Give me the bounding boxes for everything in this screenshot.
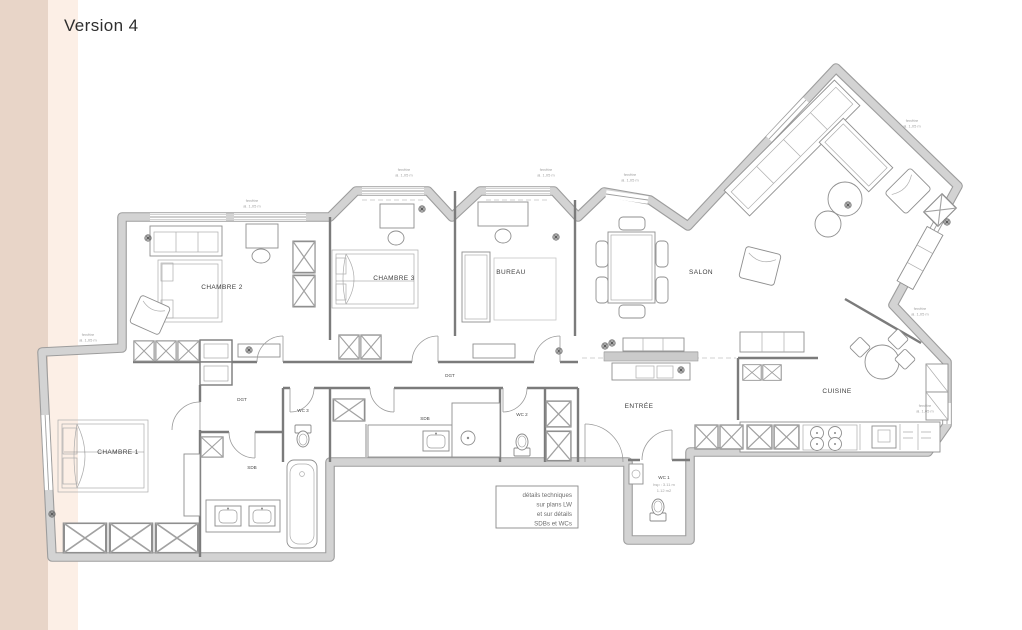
svg-text:fenêtre: fenêtre: [246, 198, 259, 203]
technical-shaft: [200, 340, 232, 385]
chambre1-furniture: [49, 420, 200, 553]
room-label-dgt-main: DGT: [445, 373, 455, 378]
svg-text:al. 1,05 m: al. 1,05 m: [903, 124, 921, 129]
room-label-sdb-mid: SDB: [420, 416, 429, 421]
room-label-chambre3: CHAMBRE 3: [373, 275, 415, 282]
svg-text:fenêtre: fenêtre: [624, 172, 637, 177]
room-label-bureau: BUREAU: [496, 269, 526, 276]
entree-half-wall: [604, 352, 698, 361]
svg-text:fenêtre: fenêtre: [919, 403, 932, 408]
wc1-height-note: hsp : 3.11 m: [653, 482, 675, 487]
svg-text:fenêtre: fenêtre: [398, 167, 411, 172]
svg-text:fenêtre: fenêtre: [914, 306, 927, 311]
floor-plan-page: Version 4: [0, 0, 1022, 630]
room-label-wc1: WC 1: [658, 475, 670, 480]
svg-text:al. 1,05 m: al. 1,05 m: [621, 178, 639, 183]
room-label-wc3: WC 3: [297, 408, 309, 413]
salon-furniture: [596, 217, 781, 351]
bathroom-fixtures: [201, 399, 666, 548]
svg-text:fenêtre: fenêtre: [82, 332, 95, 337]
room-label-chambre2: CHAMBRE 2: [201, 284, 243, 291]
note-line-4: SDBs et WCs: [534, 521, 572, 528]
room-label-sdb-south: SDB: [247, 465, 256, 470]
note-line-1: détails techniques: [522, 492, 572, 499]
svg-text:fenêtre: fenêtre: [540, 167, 553, 172]
svg-text:al. 1,05 m: al. 1,05 m: [537, 173, 555, 178]
svg-text:al. 1,05 m: al. 1,05 m: [916, 409, 934, 414]
svg-text:al. 1,05 m: al. 1,05 m: [911, 312, 929, 317]
wc1-area-note: 1.12 m2: [657, 488, 672, 493]
svg-text:al. 1,05 m: al. 1,05 m: [79, 338, 97, 343]
svg-text:al. 1,05 m: al. 1,05 m: [243, 204, 261, 209]
room-label-dgt-west: DGT: [237, 397, 247, 402]
room-label-cuisine: CUISINE: [822, 388, 851, 395]
room-label-salon: SALON: [689, 269, 713, 276]
svg-text:al. 1,05 m: al. 1,05 m: [395, 173, 413, 178]
note-line-2: sur plans LW: [536, 502, 572, 509]
floor-plan-drawing: CHAMBRE 2 CHAMBRE 3 BUREAU SALON ENTRÉE …: [0, 0, 1022, 630]
technical-note-box: détails techniques sur plans LW et sur d…: [496, 486, 578, 528]
note-line-3: et sur détails: [537, 511, 572, 518]
svg-text:fenêtre: fenêtre: [906, 118, 919, 123]
room-label-chambre1: CHAMBRE 1: [97, 449, 139, 456]
room-label-entree: ENTRÉE: [625, 401, 654, 410]
bureau-furniture: [462, 202, 562, 358]
room-label-wc2: WC 2: [516, 412, 528, 417]
